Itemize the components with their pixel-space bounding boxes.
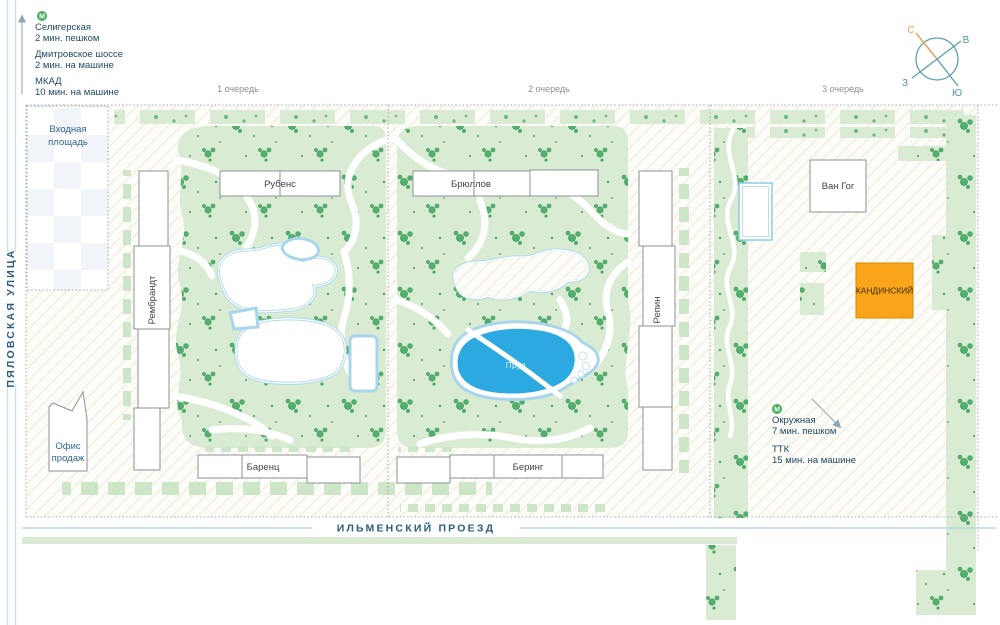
planting-row [398,447,453,452]
transit-detail: 2 мин. на машине [35,60,114,71]
green-block-east [932,235,976,310]
playground-area [282,238,318,259]
planting-row [400,504,608,512]
street-label-pyalovskaya: ПЯЛОВСКАЯ УЛИЦА [5,248,17,387]
phase-label-2: 2 очередь [528,84,570,94]
svg-text:М: М [774,407,780,414]
building-kandinsky[interactable]: КАНДИНСКИЙ [856,263,913,318]
svg-text:Беринг: Беринг [513,462,544,473]
transit-detail: 7 мин. пешком [772,426,836,437]
planting-row [62,482,492,495]
building-van-gogh[interactable]: Ван Гог [810,160,866,212]
building-repin[interactable]: Репин [639,171,675,470]
svg-text:Ван Гог: Ван Гог [822,181,855,192]
green-column-south [706,545,736,620]
stepping-stone [578,371,584,377]
phase-label-3: 3 очередь [822,84,864,94]
planting-row [205,446,355,452]
green-strip-east-lower [946,315,976,608]
stepping-stone [571,377,577,383]
stepping-stone [579,352,587,360]
entrance-plaza: Входная площадь [27,106,108,290]
street-label-ilmensky: ИЛЬМЕНСКИЙ ПРОЕЗД [337,522,496,535]
svg-text:Рубенс: Рубенс [264,179,296,190]
compass-west-label: З [902,78,908,89]
masterplan-page: Пруд ИЛЬМЕНСКИЙ ПРОЕЗД ПЯЛОВСКАЯ УЛИЦА В… [0,0,1000,625]
entrance-plaza-label-line1: Входная [49,124,86,135]
green-band-phase3 [746,127,948,138]
svg-text:Репин: Репин [652,297,663,324]
metro-icon: М [37,11,47,21]
svg-text:КАНДИНСКИЙ: КАНДИНСКИЙ [856,285,913,296]
svg-text:Рембрандт: Рембрандт [147,275,158,324]
stepping-stone [582,362,589,369]
transit-label: ТТК [772,444,790,455]
planting-row [123,170,131,420]
transit-detail: 15 мин. на машине [772,455,856,466]
compass-east-label: В [963,35,970,46]
roadside-green-strip [22,537,737,544]
street-pyalovskaya-label: ПЯЛОВСКАЯ УЛИЦА [2,248,19,387]
entrance-plaza-label-line2: площадь [48,137,88,148]
svg-text:Офис: Офис [55,441,81,452]
court-area [350,336,377,391]
transit-detail: 10 мин. на машине [35,87,119,98]
court-area [230,308,258,329]
pond-label: Пруд [506,361,527,370]
compass-south-label: Ю [952,88,962,99]
svg-text:М: М [39,14,45,21]
transit-label: Селигерская [35,22,91,33]
transit-label: Дмитровское шоссе [35,49,123,60]
building-rubens[interactable]: Рубенс [220,171,340,196]
svg-text:Баренц: Баренц [247,462,280,473]
green-patch [800,283,824,315]
svg-text:продаж: продаж [52,453,85,464]
transit-detail: 2 мин. пешком [35,33,99,44]
green-flare-southeast [916,570,976,615]
masterplan-map: Пруд ИЛЬМЕНСКИЙ ПРОЕЗД ПЯЛОВСКАЯ УЛИЦА В… [0,0,1000,625]
green-band-top [114,110,964,124]
transit-label: МКАД [35,76,62,87]
green-patch [800,252,826,272]
pool-area [739,183,772,240]
green-arm-east [898,146,946,161]
planting-row [679,168,689,473]
phase-label-1: 1 очередь [217,84,259,94]
compass-north-label: С [907,25,914,36]
svg-text:Брюллов: Брюллов [451,179,491,190]
transit-label: Окружная [772,415,816,426]
metro-icon: М [772,404,782,414]
building-bryullov[interactable]: Брюллов [413,170,598,196]
